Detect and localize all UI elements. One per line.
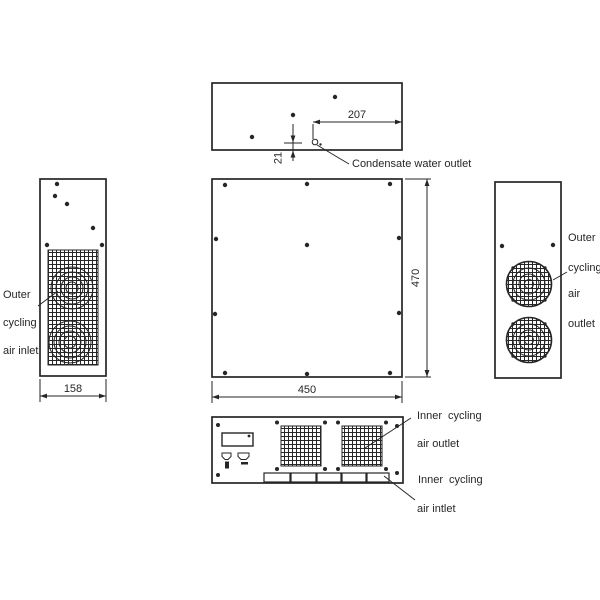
left-side-view: 158 Outer cycling air inlet [3,179,106,402]
inner-inlet-slots [264,473,389,482]
inner-outlet-label-line2: air outlet [417,438,459,450]
engineering-drawing: 207 21 Condensate water outlet [0,0,600,600]
outer-inlet-label-line1: Outer [3,289,31,301]
dim-158-label: 158 [64,383,82,395]
condensate-outlet-hole [312,139,321,146]
inner-inlet-leader-line [384,476,415,500]
inner-outlet-grille-right [336,421,388,472]
inner-outlet-label-word1: Inner [417,410,442,422]
outlet-fan-grille-upper [506,261,552,307]
front-view-outline [212,179,402,377]
outer-outlet-leader-line [553,272,567,280]
right-side-view: Outer cycling air outlet [495,182,600,378]
outer-outlet-label-line1: Outer [568,232,596,244]
inner-cycling-air-inlet-label: Inner cycling air intlet [417,474,483,515]
outer-outlet-label-line2: cycling [568,262,600,274]
dimension-450: 450 [212,381,402,403]
outer-cycling-air-inlet-label: Outer cycling air inlet [3,289,38,357]
dim-470-label: 470 [410,269,422,287]
inner-cycling-air-outlet-label: Inner cycling air outlet [417,410,482,450]
right-view-mounting-holes [500,243,555,248]
outer-inlet-label-line3: air inlet [3,345,38,357]
dimension-21: 21 [273,124,303,164]
condensate-outlet-label: Condensate water outlet [352,158,471,170]
front-view-mounting-holes [213,182,401,376]
inner-outlet-label-word2: cycling [448,410,482,422]
connector-socket-icon [222,453,231,460]
outlet-fan-grille-lower [506,317,552,363]
inner-outlet-grille-left [275,421,327,472]
inner-inlet-label-line2: air intlet [417,503,456,515]
dimension-470: 470 [405,179,431,377]
outer-outlet-label-line3: air [568,288,581,300]
dimension-158: 158 [40,379,106,402]
left-view-mounting-holes [45,182,104,247]
condensate-leader-line [317,145,349,164]
outer-cycling-air-outlet-label: Outer cycling air outlet [568,232,600,330]
dim-450-label: 450 [298,384,316,396]
inner-inlet-label-word2: cycling [449,474,483,486]
dimension-207: 207 [313,109,402,139]
top-view: 207 21 Condensate water outlet [212,83,471,170]
outer-inlet-label-line2: cycling [3,317,37,329]
dim-21-label: 21 [273,152,285,164]
inner-inlet-label-word1: Inner [418,474,443,486]
bottom-view: Inner cycling air outlet Inner cycling a… [212,410,483,515]
connector-socket-icon [238,453,249,460]
top-view-outline [212,83,402,150]
dim-207-label: 207 [348,109,366,121]
outer-outlet-label-line4: outlet [568,318,595,330]
inlet-mesh-grille [48,250,98,365]
connector-sockets [222,453,249,469]
display-panel [222,433,253,446]
front-view: 450 470 [212,179,431,403]
